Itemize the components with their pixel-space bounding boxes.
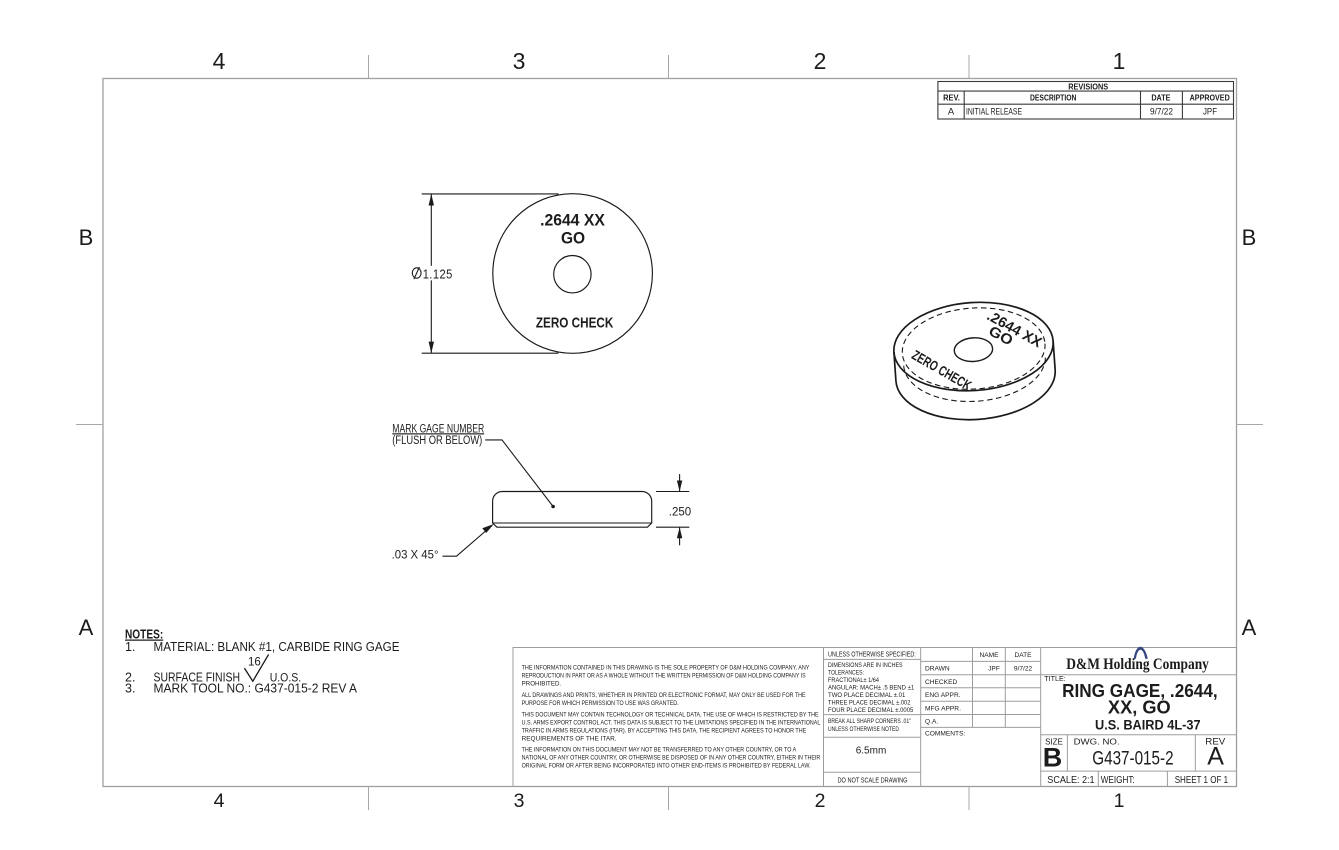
svg-text:16: 16 <box>248 657 261 669</box>
svg-text:DRAWN: DRAWN <box>925 666 950 673</box>
svg-text:INITIAL RELEASE: INITIAL RELEASE <box>966 107 1022 118</box>
svg-text:U.S. BAIRD 4L-37: U.S. BAIRD 4L-37 <box>1095 718 1201 733</box>
svg-text:9/7/22: 9/7/22 <box>1014 666 1033 673</box>
svg-text:3: 3 <box>513 48 526 74</box>
svg-text:THE INFORMATION ON THIS DOCUME: THE INFORMATION ON THIS DOCUMENT MAY NOT… <box>522 746 797 753</box>
svg-text:DWG. NO.: DWG. NO. <box>1074 738 1120 747</box>
svg-text:MARK GAGE NUMBER: MARK GAGE NUMBER <box>392 423 484 435</box>
svg-text:REVISIONS: REVISIONS <box>1068 81 1108 91</box>
svg-text:XX, GO: XX, GO <box>1108 697 1171 717</box>
svg-text:3: 3 <box>514 790 525 812</box>
svg-text:4: 4 <box>214 790 225 812</box>
svg-text:(FLUSH OR BELOW): (FLUSH OR BELOW) <box>392 435 482 447</box>
svg-text:DATE: DATE <box>1151 93 1170 103</box>
svg-text:A: A <box>79 615 94 640</box>
svg-text:APPROVED: APPROVED <box>1190 93 1230 103</box>
svg-text:4: 4 <box>213 48 226 74</box>
svg-text:COMMENTS:: COMMENTS: <box>925 731 965 738</box>
svg-text:FOUR PLACE DECIMAL ±.0005: FOUR PLACE DECIMAL ±.0005 <box>828 707 914 714</box>
svg-text:REPRODUCTION IN PART OR AS A W: REPRODUCTION IN PART OR AS A WHOLE WITHO… <box>522 673 806 680</box>
svg-text:MFG APPR.: MFG APPR. <box>925 706 961 713</box>
svg-text:.250: .250 <box>669 506 691 518</box>
svg-text:U.S. ARMS EXPORT CONTROL ACT.: U.S. ARMS EXPORT CONTROL ACT. THIS DATA … <box>522 720 821 727</box>
svg-text:PROHIBITED.: PROHIBITED. <box>522 681 562 688</box>
svg-text:1.: 1. <box>125 640 135 654</box>
svg-text:FRACTIONAL± 1/64: FRACTIONAL± 1/64 <box>828 677 879 684</box>
svg-text:ZERO CHECK: ZERO CHECK <box>536 314 614 331</box>
svg-text:ENG APPR.: ENG APPR. <box>925 692 961 699</box>
svg-text:WEIGHT:: WEIGHT: <box>1101 775 1135 786</box>
svg-text:.03 X 45°: .03 X 45° <box>392 550 439 562</box>
svg-text:Q.A.: Q.A. <box>925 719 938 726</box>
svg-text:THREE PLACE DECIMAL ±.002: THREE PLACE DECIMAL ±.002 <box>828 700 911 707</box>
svg-text:9/7/22: 9/7/22 <box>1150 107 1173 118</box>
svg-text:TOLERANCES:: TOLERANCES: <box>828 670 864 677</box>
svg-text:REQUIREMENTS OF THE ITAR.: REQUIREMENTS OF THE ITAR. <box>522 736 617 743</box>
svg-text:PURPOSE FOR WHICH PERMISSION T: PURPOSE FOR WHICH PERMISSION TO USE WAS … <box>522 700 679 707</box>
svg-text:DESCRIPTION: DESCRIPTION <box>1030 93 1076 103</box>
svg-text:.2644 XX: .2644 XX <box>540 212 605 230</box>
svg-text:UNLESS OTHERWISE NOTED: UNLESS OTHERWISE NOTED <box>828 726 899 733</box>
svg-text:THIS DOCUMENT MAY CONTAIN TECH: THIS DOCUMENT MAY CONTAIN TECHNOLOGY OR … <box>522 712 819 719</box>
svg-text:MARK TOOL NO.: G437-015-2 RE: MARK TOOL NO.: G437-015-2 REV A <box>154 682 358 696</box>
svg-text:THE INFORMATION CONTAINED IN T: THE INFORMATION CONTAINED IN THIS DRAWIN… <box>522 665 810 672</box>
svg-text:G437-015-2: G437-015-2 <box>1092 748 1173 770</box>
svg-text:DIMENSIONS ARE IN INCHES: DIMENSIONS ARE IN INCHES <box>828 662 903 669</box>
svg-text:SCALE: 2:1: SCALE: 2:1 <box>1047 775 1095 786</box>
svg-text:2: 2 <box>814 48 827 74</box>
svg-text:JPF: JPF <box>1203 107 1217 118</box>
svg-text:REV.: REV. <box>943 93 960 103</box>
svg-text:SHEET 1 OF 1: SHEET 1 OF 1 <box>1175 775 1229 786</box>
svg-text:1.125: 1.125 <box>423 268 453 282</box>
svg-text:B: B <box>1242 225 1257 250</box>
svg-text:BREAK ALL SHARP CORNERS .01": BREAK ALL SHARP CORNERS .01" <box>828 718 912 725</box>
svg-text:ORIGINAL FORM OR AFTER BEING I: ORIGINAL FORM OR AFTER BEING INCORPORATE… <box>522 762 811 769</box>
svg-text:TWO PLACE DECIMAL ±.01: TWO PLACE DECIMAL ±.01 <box>828 692 906 699</box>
svg-text:1: 1 <box>1114 790 1125 812</box>
svg-text:A: A <box>1242 615 1257 640</box>
svg-text:JPF: JPF <box>988 666 1000 673</box>
svg-text:B: B <box>79 225 94 250</box>
svg-text:CHECKED: CHECKED <box>925 679 957 686</box>
svg-text:6.5mm: 6.5mm <box>856 746 887 757</box>
svg-text:NATIONAL OF ANY OTHER COUNTRY,: NATIONAL OF ANY OTHER COUNTRY, OR OTHERW… <box>522 754 821 761</box>
svg-text:3.: 3. <box>125 682 135 696</box>
svg-text:MATERIAL: BLANK #1, CARBIDE R: MATERIAL: BLANK #1, CARBIDE RING GAGE <box>154 640 400 654</box>
svg-text:DO NOT SCALE DRAWING: DO NOT SCALE DRAWING <box>838 776 908 785</box>
svg-text:TRAFFIC IN ARMS REGULATIONS (I: TRAFFIC IN ARMS REGULATIONS (ITAR). BY A… <box>522 728 807 735</box>
svg-text:A: A <box>948 107 955 118</box>
svg-text:B: B <box>1043 743 1063 773</box>
svg-text:2: 2 <box>815 790 826 812</box>
svg-text:DATE: DATE <box>1014 652 1032 659</box>
svg-text:UNLESS OTHERWISE SPECIFIED:: UNLESS OTHERWISE SPECIFIED: <box>828 649 916 658</box>
svg-text:GO: GO <box>561 230 585 248</box>
svg-text:ALL DRAWINGS AND PRINTS, WHETH: ALL DRAWINGS AND PRINTS, WHETHER IN PRIN… <box>522 692 806 699</box>
svg-text:NAME: NAME <box>979 652 999 659</box>
svg-text:1: 1 <box>1113 48 1126 74</box>
svg-text:ANGULAR: MACH± .5 BEND ±1: ANGULAR: MACH± .5 BEND ±1 <box>828 685 914 692</box>
svg-text:D&M Holding Company: D&M Holding Company <box>1066 656 1209 673</box>
svg-text:A: A <box>1207 743 1224 771</box>
